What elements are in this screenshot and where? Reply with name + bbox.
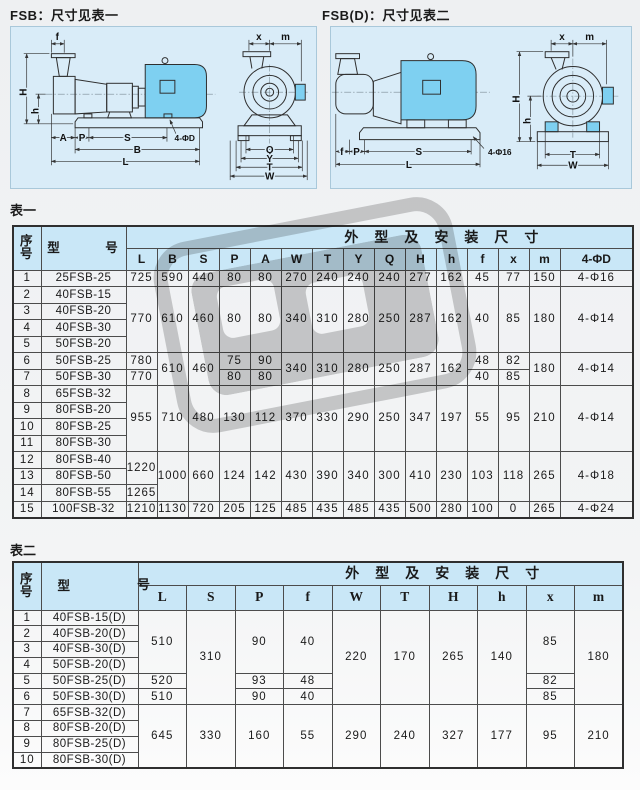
data-cell: 4-Φ16 bbox=[560, 270, 633, 287]
data-cell: 460 bbox=[188, 353, 219, 386]
table-row: 序号型 号外型及安装尺寸 bbox=[13, 226, 633, 248]
header-cell: x bbox=[526, 585, 575, 610]
data-cell: 270 bbox=[281, 270, 312, 287]
data-cell: 590 bbox=[157, 270, 188, 287]
data-cell: 162 bbox=[436, 287, 467, 353]
data-cell: 82 bbox=[498, 353, 529, 370]
data-cell: 85 bbox=[498, 287, 529, 353]
data-cell: 140 bbox=[478, 610, 527, 705]
header-cell: P bbox=[219, 248, 250, 270]
table-row: 15100FSB-3212101130720205125485435485435… bbox=[13, 501, 633, 518]
data-cell: 250 bbox=[374, 353, 405, 386]
data-cell: 80FSB-40 bbox=[41, 452, 126, 469]
data-cell: 80 bbox=[250, 369, 281, 386]
data-cell: 330 bbox=[312, 386, 343, 452]
data-cell: 100 bbox=[467, 501, 498, 518]
data-cell: 770 bbox=[126, 369, 157, 386]
data-cell: 142 bbox=[250, 452, 281, 502]
header-cell: m bbox=[529, 248, 560, 270]
fsb-figure-title: FSB：尺寸见表一 bbox=[10, 5, 119, 24]
data-cell: 265 bbox=[529, 452, 560, 502]
data-cell: 40FSB-30(D) bbox=[41, 642, 138, 658]
header-cell: 型 号 bbox=[41, 226, 126, 270]
data-cell: 80 bbox=[219, 270, 250, 287]
header-cell: Y bbox=[343, 248, 374, 270]
data-cell: 80 bbox=[219, 369, 250, 386]
data-cell: 710 bbox=[157, 386, 188, 452]
data-cell: 280 bbox=[343, 353, 374, 386]
fsb-pump-drawing: f H h A P S 4-ΦD B L x m Q Y T W bbox=[11, 27, 316, 188]
data-cell: 75 bbox=[219, 353, 250, 370]
data-cell: 10 bbox=[13, 419, 41, 436]
data-cell: 250 bbox=[374, 287, 405, 353]
data-cell: 347 bbox=[405, 386, 436, 452]
dim-label-S: S bbox=[124, 133, 131, 144]
data-cell: 10 bbox=[13, 752, 41, 768]
data-cell: 500 bbox=[405, 501, 436, 518]
data-cell: 310 bbox=[187, 610, 236, 705]
data-cell: 4-Φ14 bbox=[560, 353, 633, 386]
data-cell: 240 bbox=[312, 270, 343, 287]
data-cell: 90 bbox=[235, 610, 284, 673]
data-cell: 80FSB-55 bbox=[41, 485, 126, 502]
table-row: 序号型外型及安装尺寸 bbox=[13, 562, 623, 585]
data-cell: 50FSB-25(D) bbox=[41, 673, 138, 689]
header-cell: 型 bbox=[41, 562, 138, 610]
data-cell: 25FSB-25 bbox=[41, 270, 126, 287]
data-cell: 205 bbox=[219, 501, 250, 518]
fsbd-drawing-panel: f P S L 4-Φ16 x m H h T W bbox=[330, 26, 632, 189]
fsb-side-view bbox=[51, 54, 206, 128]
datasheet-page: FSB：尺寸见表一 FSB(D)：尺寸见表二 bbox=[0, 0, 640, 790]
dim-label-m: m bbox=[585, 32, 594, 43]
data-cell: 55 bbox=[284, 705, 333, 768]
data-cell: 265 bbox=[429, 610, 478, 705]
data-cell: 162 bbox=[436, 270, 467, 287]
header-cell: H bbox=[429, 585, 478, 610]
header-cell: 序号 bbox=[13, 226, 41, 270]
table2-label: 表二 bbox=[10, 540, 36, 559]
table1-label: 表一 bbox=[10, 200, 36, 219]
dim-label-S: S bbox=[415, 147, 422, 158]
data-cell: 610 bbox=[157, 287, 188, 353]
fsbd-side-view bbox=[336, 54, 480, 140]
header-cell: 4-ΦD bbox=[560, 248, 633, 270]
data-cell: 480 bbox=[188, 386, 219, 452]
data-cell: 770 bbox=[126, 287, 157, 353]
data-cell: 280 bbox=[436, 501, 467, 518]
dim-label-H: H bbox=[512, 96, 523, 103]
table-row: 550FSB-25(D)520934882 bbox=[13, 673, 623, 689]
table-row: 765FSB-32(D)6453301605529024032717795210 bbox=[13, 705, 623, 721]
data-cell: 520 bbox=[138, 673, 187, 689]
data-cell: 210 bbox=[575, 705, 624, 768]
data-cell: 124 bbox=[219, 452, 250, 502]
data-cell: 1210 bbox=[126, 501, 157, 518]
header-cell: 外型及安装尺寸 bbox=[138, 562, 623, 585]
data-cell: 55 bbox=[467, 386, 498, 452]
data-cell: 4 bbox=[13, 657, 41, 673]
data-cell: 90 bbox=[235, 689, 284, 705]
table-row: 240FSB-157706104608080340310280250287162… bbox=[13, 287, 633, 304]
data-cell: 610 bbox=[157, 353, 188, 386]
data-cell: 80FSB-50 bbox=[41, 468, 126, 485]
data-cell: 40 bbox=[467, 369, 498, 386]
dim-label-W: W bbox=[568, 161, 578, 172]
data-cell: 4 bbox=[13, 320, 41, 337]
dim-label-f: f bbox=[56, 32, 60, 43]
fsb-front-view bbox=[238, 52, 305, 141]
fsbd-front-view bbox=[537, 52, 613, 142]
data-cell: 118 bbox=[498, 452, 529, 502]
data-cell: 460 bbox=[188, 287, 219, 353]
data-cell: 197 bbox=[436, 386, 467, 452]
dim-label-P: P bbox=[79, 133, 86, 144]
header-cell: A bbox=[250, 248, 281, 270]
data-cell: 80FSB-25(D) bbox=[41, 736, 138, 752]
data-cell: 3 bbox=[13, 303, 41, 320]
data-cell: 340 bbox=[281, 353, 312, 386]
data-cell: 162 bbox=[436, 353, 467, 386]
dim-label-H: H bbox=[19, 89, 30, 96]
data-cell: 230 bbox=[436, 452, 467, 502]
data-cell: 6 bbox=[13, 353, 41, 370]
table2-model-header-char: 号 bbox=[137, 574, 150, 593]
data-cell: 50FSB-30 bbox=[41, 369, 126, 386]
data-cell: 85 bbox=[498, 369, 529, 386]
data-cell: 93 bbox=[235, 673, 284, 689]
data-cell: 48 bbox=[467, 353, 498, 370]
data-cell: 290 bbox=[332, 705, 381, 768]
data-cell: 300 bbox=[374, 452, 405, 502]
table-row: 1280FSB-40122010006601241424303903403004… bbox=[13, 452, 633, 469]
data-cell: 14 bbox=[13, 485, 41, 502]
data-cell: 510 bbox=[138, 610, 187, 673]
data-cell: 40 bbox=[284, 610, 333, 673]
header-cell: h bbox=[436, 248, 467, 270]
data-cell: 780 bbox=[126, 353, 157, 370]
data-cell: 240 bbox=[343, 270, 374, 287]
dim-label-h: h bbox=[31, 108, 42, 114]
data-cell: 4-Φ14 bbox=[560, 386, 633, 452]
header-cell: L bbox=[126, 248, 157, 270]
header-cell: f bbox=[284, 585, 333, 610]
header-cell: T bbox=[381, 585, 430, 610]
data-cell: 40FSB-20(D) bbox=[41, 626, 138, 642]
data-cell: 48 bbox=[284, 673, 333, 689]
data-cell: 177 bbox=[478, 705, 527, 768]
data-cell: 85 bbox=[526, 610, 575, 673]
data-cell: 112 bbox=[250, 386, 281, 452]
data-cell: 65FSB-32(D) bbox=[41, 705, 138, 721]
data-cell: 40FSB-20 bbox=[41, 303, 126, 320]
data-cell: 80 bbox=[250, 270, 281, 287]
data-cell: 80FSB-30 bbox=[41, 435, 126, 452]
table1-dimensions: 序号型 号外型及安装尺寸LBSPAWTYQHhfxm4-ΦD125FSB-257… bbox=[12, 225, 634, 519]
data-cell: 435 bbox=[374, 501, 405, 518]
data-cell: 50FSB-30(D) bbox=[41, 689, 138, 705]
data-cell: 0 bbox=[498, 501, 529, 518]
data-cell: 1000 bbox=[157, 452, 188, 502]
data-cell: 240 bbox=[374, 270, 405, 287]
dim-label-P: P bbox=[353, 147, 360, 158]
data-cell: 485 bbox=[281, 501, 312, 518]
data-cell: 85 bbox=[526, 689, 575, 705]
header-cell: m bbox=[575, 585, 624, 610]
data-cell: 287 bbox=[405, 287, 436, 353]
data-cell: 130 bbox=[219, 386, 250, 452]
data-cell: 240 bbox=[381, 705, 430, 768]
data-cell: 45 bbox=[467, 270, 498, 287]
data-cell: 9 bbox=[13, 402, 41, 419]
data-cell: 725 bbox=[126, 270, 157, 287]
data-cell: 12 bbox=[13, 452, 41, 469]
header-cell: W bbox=[281, 248, 312, 270]
table-row: 650FSB-30(D)510904085 bbox=[13, 689, 623, 705]
motor-shape bbox=[145, 65, 206, 118]
data-cell: 15 bbox=[13, 501, 41, 518]
dim-label-T: T bbox=[570, 150, 576, 161]
header-cell: h bbox=[478, 585, 527, 610]
table-row: 650FSB-257806104607590340310280250287162… bbox=[13, 353, 633, 370]
data-cell: 220 bbox=[332, 610, 381, 705]
data-cell: 95 bbox=[498, 386, 529, 452]
data-cell: 8 bbox=[13, 386, 41, 403]
data-cell: 720 bbox=[188, 501, 219, 518]
data-cell: 7 bbox=[13, 705, 41, 721]
dim-label-W: W bbox=[265, 172, 275, 183]
data-cell: 327 bbox=[429, 705, 478, 768]
data-cell: 180 bbox=[529, 287, 560, 353]
table2-dimensions: 序号型外型及安装尺寸LSPfWTHhxm140FSB-15(D)51031090… bbox=[12, 561, 624, 769]
data-cell: 80 bbox=[219, 287, 250, 353]
header-cell: 外型及安装尺寸 bbox=[126, 226, 633, 248]
data-cell: 645 bbox=[138, 705, 187, 768]
header-cell: S bbox=[188, 248, 219, 270]
dim-label-L: L bbox=[122, 157, 128, 168]
data-cell: 80FSB-30(D) bbox=[41, 752, 138, 768]
data-cell: 410 bbox=[405, 452, 436, 502]
data-cell: 2 bbox=[13, 287, 41, 304]
data-cell: 50FSB-20 bbox=[41, 336, 126, 353]
fsb-drawing-panel: f H h A P S 4-ΦD B L x m Q Y T W bbox=[10, 26, 317, 189]
dim-label-x: x bbox=[559, 32, 565, 43]
dim-label-f: f bbox=[340, 147, 344, 158]
data-cell: 80FSB-20(D) bbox=[41, 721, 138, 737]
table-row: 865FSB-329557104801301123703302902503471… bbox=[13, 386, 633, 403]
data-cell: 6 bbox=[13, 689, 41, 705]
data-cell: 250 bbox=[374, 386, 405, 452]
motor-shape bbox=[401, 61, 476, 120]
data-cell: 103 bbox=[467, 452, 498, 502]
header-cell: S bbox=[187, 585, 236, 610]
header-cell: f bbox=[467, 248, 498, 270]
data-cell: 340 bbox=[281, 287, 312, 353]
dim-label-x: x bbox=[256, 32, 262, 43]
data-cell: 955 bbox=[126, 386, 157, 452]
data-cell: 277 bbox=[405, 270, 436, 287]
dim-label-A: A bbox=[60, 133, 67, 144]
data-cell: 310 bbox=[312, 287, 343, 353]
data-cell: 4-Φ18 bbox=[560, 452, 633, 502]
data-cell: 5 bbox=[13, 336, 41, 353]
data-cell: 180 bbox=[575, 610, 624, 705]
data-cell: 280 bbox=[343, 287, 374, 353]
data-cell: 8 bbox=[13, 721, 41, 737]
data-cell: 13 bbox=[13, 468, 41, 485]
data-cell: 210 bbox=[529, 386, 560, 452]
data-cell: 40FSB-15 bbox=[41, 287, 126, 304]
dim-label-m: m bbox=[281, 32, 290, 43]
data-cell: 2 bbox=[13, 626, 41, 642]
data-cell: 170 bbox=[381, 610, 430, 705]
data-cell: 265 bbox=[529, 501, 560, 518]
data-cell: 340 bbox=[343, 452, 374, 502]
data-cell: 65FSB-32 bbox=[41, 386, 126, 403]
header-cell: P bbox=[235, 585, 284, 610]
data-cell: 11 bbox=[13, 435, 41, 452]
data-cell: 40 bbox=[284, 689, 333, 705]
data-cell: 40 bbox=[467, 287, 498, 353]
fsbd-pump-drawing: f P S L 4-Φ16 x m H h T W bbox=[331, 27, 631, 188]
header-cell: Q bbox=[374, 248, 405, 270]
data-cell: 510 bbox=[138, 689, 187, 705]
data-cell: 1265 bbox=[126, 485, 157, 502]
data-cell: 82 bbox=[526, 673, 575, 689]
data-cell: 430 bbox=[281, 452, 312, 502]
dim-label-B: B bbox=[134, 145, 141, 156]
data-cell: 435 bbox=[312, 501, 343, 518]
data-cell: 330 bbox=[187, 705, 236, 768]
header-cell: W bbox=[332, 585, 381, 610]
data-cell: 5 bbox=[13, 673, 41, 689]
header-cell: T bbox=[312, 248, 343, 270]
data-cell: 440 bbox=[188, 270, 219, 287]
dim-label-h: h bbox=[522, 118, 533, 124]
data-cell: 80FSB-20 bbox=[41, 402, 126, 419]
data-cell: 310 bbox=[312, 353, 343, 386]
table-row: 140FSB-15(D)510310904022017026514085180 bbox=[13, 610, 623, 626]
data-cell: 1130 bbox=[157, 501, 188, 518]
data-cell: 1 bbox=[13, 270, 41, 287]
data-cell: 125 bbox=[250, 501, 281, 518]
data-cell: 660 bbox=[188, 452, 219, 502]
data-cell: 290 bbox=[343, 386, 374, 452]
data-cell: 95 bbox=[526, 705, 575, 768]
header-cell: 序号 bbox=[13, 562, 41, 610]
data-cell: 390 bbox=[312, 452, 343, 502]
data-cell: 100FSB-32 bbox=[41, 501, 126, 518]
header-cell: H bbox=[405, 248, 436, 270]
data-cell: 40FSB-15(D) bbox=[41, 610, 138, 626]
data-cell: 370 bbox=[281, 386, 312, 452]
dim-label-L: L bbox=[406, 160, 412, 171]
data-cell: 80FSB-25 bbox=[41, 419, 126, 436]
data-cell: 160 bbox=[235, 705, 284, 768]
fsbd-figure-title: FSB(D)：尺寸见表二 bbox=[322, 5, 450, 24]
header-cell: x bbox=[498, 248, 529, 270]
data-cell: 4-Φ14 bbox=[560, 287, 633, 353]
data-cell: 3 bbox=[13, 642, 41, 658]
data-cell: 7 bbox=[13, 369, 41, 386]
data-cell: 180 bbox=[529, 353, 560, 386]
dim-label-holes-d: 4-ΦD bbox=[175, 133, 195, 143]
data-cell: 50FSB-20(D) bbox=[41, 657, 138, 673]
data-cell: 485 bbox=[343, 501, 374, 518]
data-cell: 287 bbox=[405, 353, 436, 386]
data-cell: 1220 bbox=[126, 452, 157, 485]
data-cell: 40FSB-30 bbox=[41, 320, 126, 337]
dim-label-holes-16: 4-Φ16 bbox=[488, 147, 512, 157]
data-cell: 77 bbox=[498, 270, 529, 287]
data-cell: 9 bbox=[13, 736, 41, 752]
data-cell: 90 bbox=[250, 353, 281, 370]
data-cell: 1 bbox=[13, 610, 41, 626]
data-cell: 150 bbox=[529, 270, 560, 287]
data-cell: 50FSB-25 bbox=[41, 353, 126, 370]
data-cell: 4-Φ24 bbox=[560, 501, 633, 518]
table-row: 125FSB-257255904408080270240240240277162… bbox=[13, 270, 633, 287]
header-cell: B bbox=[157, 248, 188, 270]
data-cell: 80 bbox=[250, 287, 281, 353]
